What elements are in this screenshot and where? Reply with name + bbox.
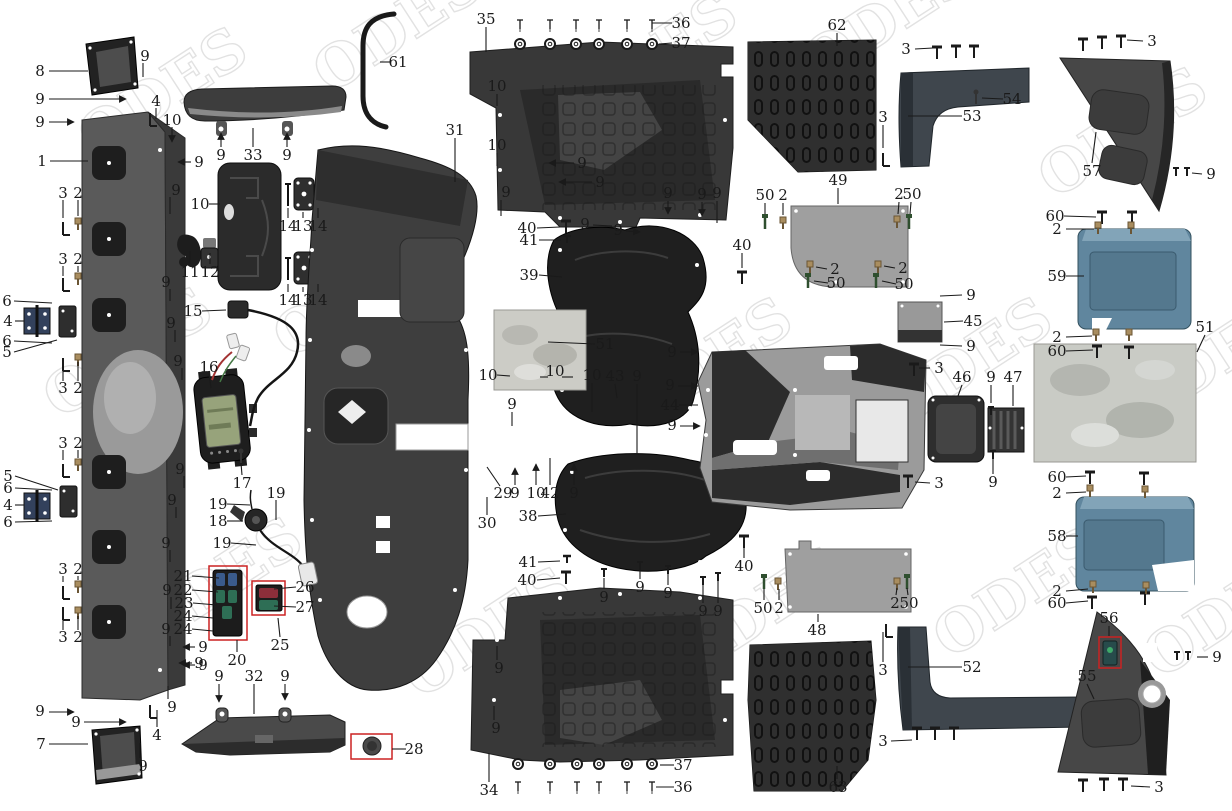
- part-number-9: 9: [494, 659, 504, 677]
- callout-2: 2: [73, 434, 83, 458]
- callout-9: 9: [507, 395, 517, 426]
- part-number-43: 43: [605, 367, 624, 385]
- part-number-18: 18: [208, 512, 227, 530]
- part-number-9: 9: [280, 667, 290, 685]
- part-20-switch-panel-shape: [213, 570, 242, 636]
- callout-2: 2: [778, 186, 788, 215]
- fastener-st-icon: [596, 782, 602, 794]
- callout-3: 3: [1127, 32, 1157, 50]
- part-number-17: 17: [232, 474, 251, 492]
- leader-line: [227, 504, 250, 505]
- fastener-t-icon: [951, 46, 961, 58]
- callout-35: 35: [476, 10, 495, 52]
- leader-line: [15, 521, 52, 522]
- callout-7: 7: [36, 735, 88, 753]
- part-number-36: 36: [671, 14, 690, 32]
- parts-diagram-page: ODESODESODESODESODESODESODESODESODESODES…: [0, 0, 1232, 811]
- part-number-41: 41: [519, 231, 538, 249]
- part-number-9: 9: [632, 367, 642, 385]
- part-number-41: 41: [518, 553, 537, 571]
- part-number-40: 40: [517, 571, 536, 589]
- part-4-hinge-lower-shape: [24, 486, 77, 522]
- part-number-49: 49: [828, 171, 847, 189]
- leader-line: [1066, 336, 1092, 337]
- callout-3: 3: [58, 434, 68, 460]
- fastener-p-icon: [715, 573, 721, 581]
- part-58-cover-shape: [1076, 497, 1194, 591]
- callout-3: 3: [878, 732, 912, 750]
- fastener-p-icon: [601, 569, 607, 577]
- part-number-8: 8: [35, 62, 45, 80]
- fastener-st-icon: [596, 20, 602, 32]
- callout-3: 3: [901, 40, 933, 58]
- part-28-knob-shape: [363, 737, 381, 755]
- leader-line: [891, 740, 912, 741]
- part-number-52: 52: [962, 658, 981, 676]
- part-number-9: 9: [162, 581, 172, 599]
- part-number-46: 46: [952, 368, 971, 386]
- callout-9: 9: [280, 667, 290, 700]
- leader-line: [1127, 40, 1143, 41]
- fastener-w-icon: [545, 759, 555, 769]
- part-number-38: 38: [518, 507, 537, 525]
- part-number-9: 9: [667, 416, 677, 434]
- callout-36: 36: [656, 778, 693, 796]
- part-number-6: 6: [3, 513, 13, 531]
- part-51-heat-shield-left-shape: [494, 310, 586, 390]
- callout-9: 9: [667, 416, 700, 434]
- part-number-58: 58: [1047, 527, 1066, 545]
- part-number-42: 42: [540, 484, 559, 502]
- part-number-2: 2: [73, 434, 83, 452]
- callout-9: 9: [988, 458, 998, 491]
- callout-9: 9: [35, 702, 74, 720]
- callout-33: 33: [243, 128, 262, 164]
- part-46-box-shape: [928, 396, 984, 462]
- part-number-9: 9: [1206, 165, 1216, 183]
- callout-25: 25: [270, 618, 289, 654]
- callout-9: 9: [1192, 165, 1216, 183]
- leader-line: [15, 488, 52, 490]
- part-number-9: 9: [167, 698, 177, 716]
- part-number-10: 10: [487, 136, 506, 154]
- leader-line: [915, 48, 933, 49]
- part-63-floor-mat-shape: [748, 641, 876, 791]
- part-number-4: 4: [151, 92, 161, 110]
- fastener-t-icon: [1140, 593, 1150, 605]
- leader-line: [1066, 476, 1086, 477]
- part-number-14: 14: [308, 217, 327, 235]
- part-number-2: 2: [890, 594, 900, 612]
- part-47-grille-shape: [988, 408, 1024, 452]
- part-number-7: 7: [36, 735, 46, 753]
- part-number-9: 9: [713, 602, 723, 620]
- callout-30: 30: [477, 497, 496, 532]
- part-number-9: 9: [712, 184, 722, 202]
- callout-2: 2: [73, 250, 83, 272]
- part-number-48: 48: [807, 621, 826, 639]
- part-number-9: 9: [173, 352, 183, 370]
- part-number-55: 55: [1077, 667, 1096, 685]
- part-number-3: 3: [1154, 778, 1164, 796]
- part-number-9: 9: [663, 584, 673, 602]
- part-number-10: 10: [582, 366, 601, 384]
- part-number-9: 9: [138, 757, 148, 775]
- leader-line: [944, 321, 963, 322]
- part-number-36: 36: [673, 778, 692, 796]
- part-number-10: 10: [545, 362, 564, 380]
- callout-9: 9: [282, 133, 292, 164]
- part-number-47: 47: [1003, 368, 1022, 386]
- callout-3: 3: [58, 250, 68, 276]
- callout-47: 47: [1003, 368, 1022, 406]
- part-number-3: 3: [58, 628, 68, 646]
- part-number-3: 3: [58, 560, 68, 578]
- fastener-w-icon: [515, 39, 525, 49]
- leader-line: [1131, 786, 1150, 787]
- part-number-2: 2: [1052, 484, 1062, 502]
- part-4-hinge-upper-shape: [24, 305, 76, 337]
- fastener-b-icon: [1093, 329, 1099, 341]
- fastener-st-icon: [515, 782, 521, 794]
- fastener-w-icon: [594, 39, 604, 49]
- leader-line: [537, 227, 560, 228]
- callout-9: 9: [599, 578, 609, 606]
- part-number-1: 1: [37, 152, 47, 170]
- callout-34: 34: [479, 753, 498, 799]
- part-number-9: 9: [491, 719, 501, 737]
- part-number-2: 2: [1052, 220, 1062, 238]
- callout-45: 45: [944, 312, 983, 330]
- part-number-9: 9: [282, 146, 292, 164]
- fastener-w-icon: [594, 759, 604, 769]
- part-number-9: 9: [161, 534, 171, 552]
- part-number-9: 9: [986, 368, 996, 386]
- part-number-9: 9: [175, 460, 185, 478]
- fastener-L-icon: [150, 705, 157, 718]
- callout-3: 3: [878, 632, 888, 679]
- part-number-45: 45: [963, 312, 982, 330]
- part-number-9: 9: [665, 376, 675, 394]
- part-number-9: 9: [667, 343, 677, 361]
- part-number-3: 3: [934, 474, 944, 492]
- leader-line: [278, 618, 280, 637]
- part-number-19: 19: [208, 495, 227, 513]
- part-31-dashboard-shape: [304, 146, 477, 690]
- fastener-w-icon: [647, 39, 657, 49]
- part-number-2: 2: [73, 250, 83, 268]
- callout-42: 42: [540, 458, 559, 502]
- part-number-10: 10: [478, 366, 497, 384]
- part-number-30: 30: [477, 514, 496, 532]
- part-34-floor-panel-shape: [471, 588, 733, 762]
- callout-29: 29: [487, 467, 513, 502]
- fastener-r-icon: [563, 556, 571, 563]
- callout-28: 28: [392, 740, 424, 758]
- fastener-p-icon: [1184, 168, 1190, 176]
- fastener-w-icon: [513, 759, 523, 769]
- part-number-44: 44: [660, 396, 679, 414]
- part-33-top-cover-shape: [184, 86, 346, 136]
- part-number-9: 9: [663, 184, 673, 202]
- fastener-t-icon: [1087, 597, 1097, 609]
- callout-17: 17: [232, 463, 251, 492]
- fastener-L-icon: [63, 586, 70, 599]
- fastener-st-icon: [573, 20, 579, 32]
- part-number-9: 9: [697, 185, 707, 203]
- part-number-32: 32: [244, 667, 263, 685]
- part-number-10: 10: [190, 195, 209, 213]
- part-number-51: 51: [1195, 318, 1214, 336]
- fastener-t-icon: [949, 728, 959, 740]
- part-number-11: 11: [180, 263, 199, 281]
- part-number-9: 9: [613, 221, 623, 239]
- part-number-9: 9: [194, 153, 204, 171]
- fastener-w-icon: [647, 759, 657, 769]
- part-number-33: 33: [243, 146, 262, 164]
- fastener-L-icon: [63, 464, 70, 477]
- callout-2: 2: [73, 184, 83, 216]
- leader-line: [1066, 601, 1088, 603]
- part-number-9: 9: [167, 491, 177, 509]
- fastener-w-icon: [545, 39, 555, 49]
- callout-9: 9: [635, 570, 645, 596]
- fastener-st-icon: [574, 782, 580, 794]
- callout-9: 9: [698, 585, 708, 620]
- part-number-50: 50: [753, 599, 772, 617]
- part-number-50: 50: [826, 274, 845, 292]
- part-number-27: 27: [295, 598, 314, 616]
- part-number-9: 9: [599, 588, 609, 606]
- callout-40: 40: [734, 543, 753, 575]
- part-51-heat-shield-right-shape: [1034, 344, 1196, 462]
- callout-3: 3: [58, 612, 68, 646]
- callout-4: 4: [3, 312, 24, 330]
- fastener-L-icon: [886, 624, 893, 637]
- part-number-9: 9: [635, 578, 645, 596]
- part-number-9: 9: [966, 286, 976, 304]
- fastener-w-icon: [622, 759, 632, 769]
- part-number-3: 3: [901, 40, 911, 58]
- leader-line: [915, 482, 930, 483]
- part-62-floor-mat-shape: [748, 40, 876, 172]
- callout-9: 9: [940, 286, 976, 304]
- part-number-50: 50: [899, 594, 918, 612]
- leader-line: [1064, 216, 1096, 217]
- part-number-37: 37: [673, 756, 692, 774]
- part-number-60: 60: [1047, 342, 1066, 360]
- callout-49: 49: [828, 171, 847, 204]
- part-number-9: 9: [501, 183, 511, 201]
- part-number-31: 31: [445, 121, 464, 139]
- fastener-b-icon: [75, 273, 81, 285]
- callout-4: 4: [152, 710, 162, 744]
- part-number-2: 2: [778, 186, 788, 204]
- callout-3: 3: [58, 560, 68, 582]
- part-number-9: 9: [71, 713, 81, 731]
- callout-9: 9: [167, 686, 177, 716]
- fastener-b-icon: [780, 217, 786, 229]
- part-number-9: 9: [595, 173, 605, 191]
- part-number-9: 9: [1212, 648, 1222, 666]
- part-number-3: 3: [878, 732, 888, 750]
- part-number-9: 9: [198, 656, 208, 674]
- part-number-56: 56: [1099, 609, 1118, 627]
- fastener-L-icon: [883, 153, 890, 166]
- part-number-3: 3: [878, 661, 888, 679]
- part-number-9: 9: [140, 47, 150, 65]
- part-10-door-panel-shape: [218, 163, 281, 290]
- callout-10: 10: [190, 195, 220, 213]
- fastener-L-icon: [63, 222, 70, 235]
- part-number-9: 9: [198, 638, 208, 656]
- fastener-t-icon: [1099, 779, 1109, 791]
- callout-50: 50: [755, 186, 774, 214]
- fastener-st-icon: [517, 20, 523, 32]
- callout-9: 9: [986, 368, 996, 403]
- fastener-st-icon: [624, 782, 630, 794]
- fastener-st-icon: [649, 782, 655, 794]
- callout-9: 9: [501, 183, 511, 216]
- part-number-9: 9: [171, 181, 181, 199]
- part-number-2: 2: [73, 379, 83, 397]
- fastener-t-icon: [932, 47, 942, 59]
- part-number-10: 10: [162, 111, 181, 129]
- part-number-15: 15: [183, 302, 202, 320]
- leader-line: [1066, 492, 1086, 493]
- fastener-s-icon: [762, 214, 768, 229]
- part-number-4: 4: [3, 312, 13, 330]
- part-number-5: 5: [2, 343, 12, 361]
- part-7-bracket-shape: [92, 726, 142, 784]
- part-number-19: 19: [212, 534, 231, 552]
- part-number-2: 2: [774, 599, 784, 617]
- part-number-63: 63: [828, 778, 847, 796]
- callout-40: 40: [732, 236, 751, 268]
- part-number-9: 9: [35, 113, 45, 131]
- part-number-9: 9: [580, 215, 590, 233]
- part-number-9: 9: [161, 273, 171, 291]
- part-number-4: 4: [3, 496, 13, 514]
- part-number-3: 3: [58, 184, 68, 202]
- callout-3: 3: [878, 108, 888, 148]
- fastener-st-icon: [547, 782, 553, 794]
- part-number-39: 39: [519, 266, 538, 284]
- part-number-9: 9: [988, 473, 998, 491]
- fastener-t-icon: [737, 272, 747, 284]
- part-number-60: 60: [1047, 594, 1066, 612]
- part-number-40: 40: [732, 236, 751, 254]
- callout-9: 9: [216, 133, 226, 164]
- fastener-t-icon: [969, 46, 979, 58]
- part-number-61: 61: [388, 53, 407, 71]
- callout-9: 9: [663, 574, 673, 602]
- fastener-p-icon: [700, 577, 706, 585]
- callout-2: 2: [73, 616, 83, 646]
- part-number-3: 3: [58, 250, 68, 268]
- fastener-b-icon: [75, 459, 81, 471]
- part-number-2: 2: [73, 628, 83, 646]
- part-number-2: 2: [73, 184, 83, 202]
- callout-8: 8: [35, 62, 88, 80]
- part-number-14: 14: [308, 291, 327, 309]
- fastener-w-icon: [571, 39, 581, 49]
- part-number-9: 9: [35, 702, 45, 720]
- part-number-62: 62: [827, 16, 846, 34]
- part-number-3: 3: [934, 359, 944, 377]
- part-number-24: 24: [173, 620, 192, 638]
- gauge-mount-pin: [249, 428, 257, 437]
- callout-9: 9: [138, 743, 148, 775]
- leader-line: [940, 295, 962, 296]
- callout-1: 1: [37, 152, 88, 170]
- fastener-t-icon: [1078, 780, 1088, 792]
- fastener-L-icon: [63, 278, 70, 291]
- fastener-st-icon: [547, 20, 553, 32]
- part-number-3: 3: [1147, 32, 1157, 50]
- callout-3: 3: [1131, 778, 1164, 796]
- part-number-26: 26: [295, 578, 314, 596]
- fastener-st-icon: [624, 20, 630, 32]
- part-16-gauge-shape: [192, 368, 252, 471]
- part-number-9: 9: [35, 90, 45, 108]
- part-number-9: 9: [166, 314, 176, 332]
- part-number-19: 19: [266, 484, 285, 502]
- part-number-4: 4: [152, 726, 162, 744]
- part-number-57: 57: [1082, 162, 1101, 180]
- callout-19: 19: [208, 495, 250, 513]
- fastener-t-icon: [1139, 473, 1149, 485]
- callout-20: 20: [227, 640, 246, 669]
- callout-9: 9: [510, 468, 520, 502]
- leader-line: [910, 202, 911, 214]
- fastener-w-icon: [622, 39, 632, 49]
- part-number-54: 54: [1002, 90, 1021, 108]
- part-number-16: 16: [199, 358, 218, 376]
- part-number-3: 3: [58, 434, 68, 452]
- callout-32: 32: [244, 667, 263, 714]
- part-number-25: 25: [270, 636, 289, 654]
- part-8-bracket-shape: [86, 37, 138, 95]
- fastener-w-icon: [572, 759, 582, 769]
- fastener-t-icon: [1097, 37, 1107, 49]
- fastener-b-icon: [1087, 485, 1093, 497]
- fastener-b-icon: [1142, 486, 1148, 498]
- part-number-9: 9: [161, 620, 171, 638]
- part-number-28: 28: [404, 740, 423, 758]
- fastener-L-icon: [63, 607, 70, 620]
- fastener-b-icon: [1126, 329, 1132, 341]
- fastener-t-icon: [1085, 472, 1095, 484]
- part-number-9: 9: [216, 146, 226, 164]
- part-number-50: 50: [894, 275, 913, 293]
- callout-9: 9: [214, 667, 224, 702]
- part-56-switch-shape: [1103, 641, 1117, 665]
- callout-3: 3: [58, 184, 68, 218]
- callout-4: 4: [3, 496, 24, 514]
- part-number-9: 9: [510, 484, 520, 502]
- fastener-b-icon: [75, 581, 81, 593]
- fastener-t-icon: [1116, 36, 1126, 48]
- part-number-59: 59: [1047, 267, 1066, 285]
- exploded-parts-diagram: ODESODESODESODESODESODESODESODESODESODES…: [0, 0, 1232, 811]
- part-number-9: 9: [569, 484, 579, 502]
- part-number-50: 50: [902, 185, 921, 203]
- part-number-9: 9: [214, 667, 224, 685]
- part-44-bed-panel-shape: [698, 344, 926, 510]
- part-number-40: 40: [734, 557, 753, 575]
- part-number-3: 3: [878, 108, 888, 126]
